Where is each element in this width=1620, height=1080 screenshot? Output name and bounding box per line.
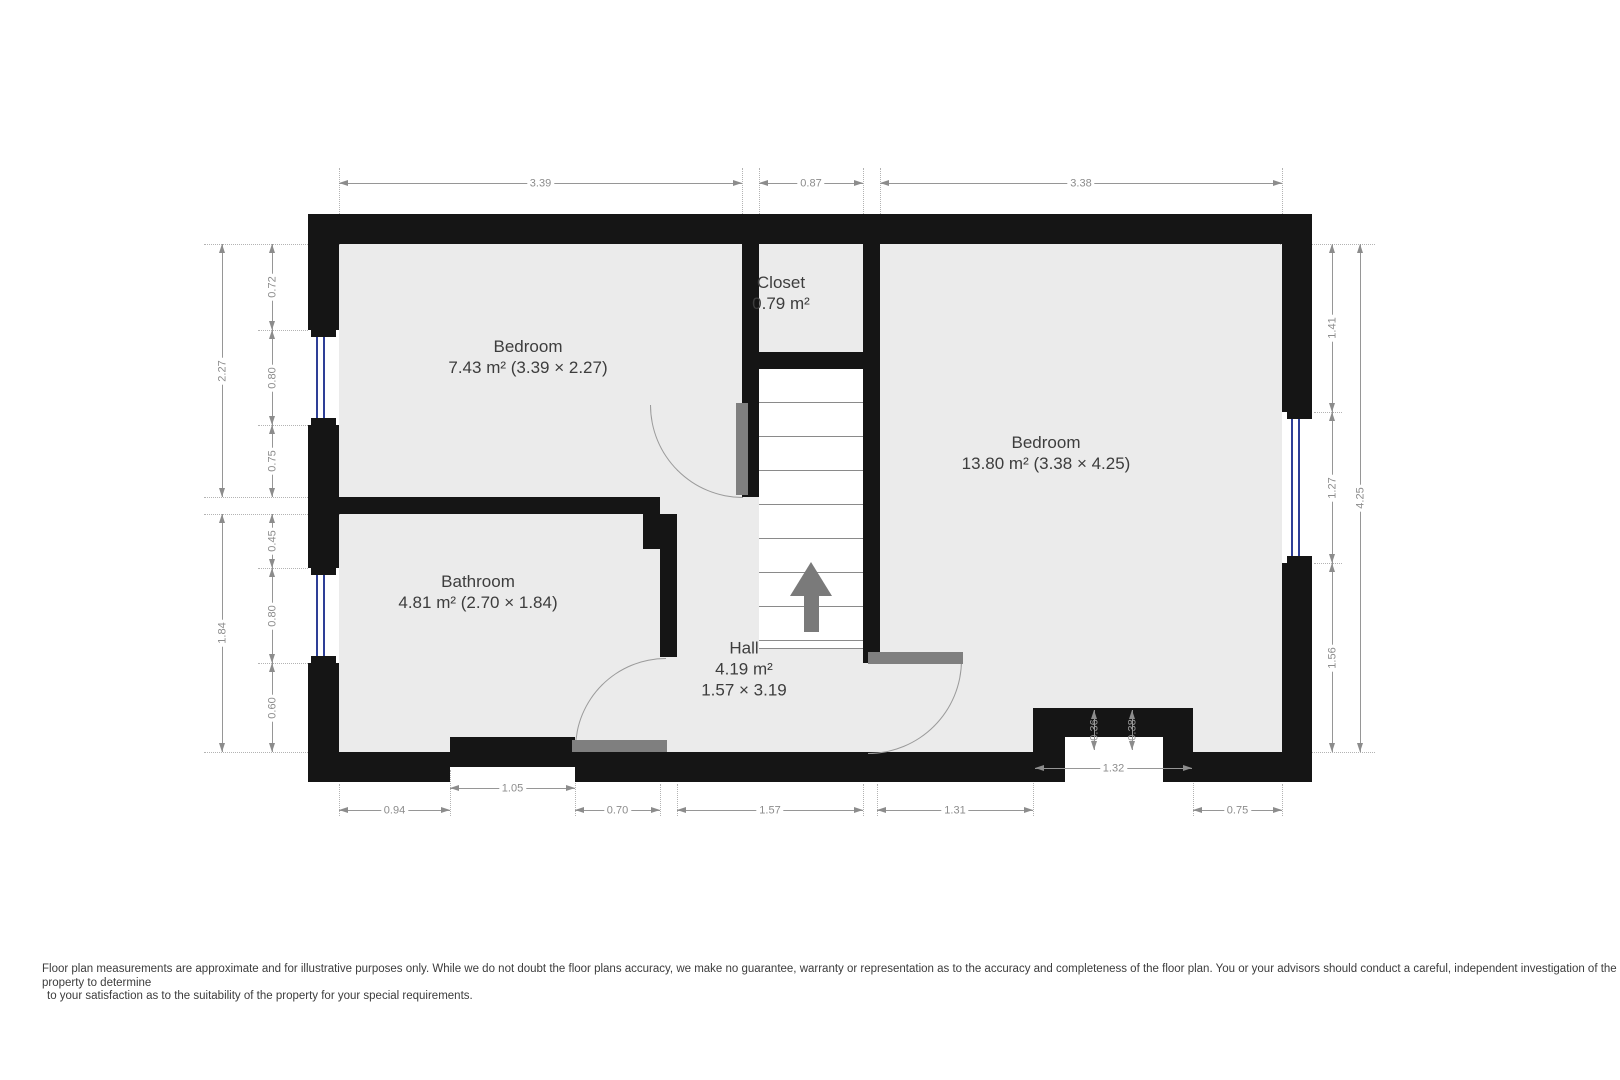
- wall-bottom-bay: [450, 737, 575, 767]
- door-leaf-bathroom: [572, 740, 667, 752]
- window-glass: [1298, 419, 1300, 556]
- extension-line: [450, 770, 451, 816]
- dimension-bottom-3: 1.57: [677, 810, 863, 811]
- stairs-up-arrow-icon: [790, 562, 832, 632]
- dimension-top-3: 3.38: [880, 183, 1282, 184]
- wall-bedroom-bathroom: [339, 497, 660, 514]
- window: [1282, 412, 1312, 563]
- dimension-chimney-depth-1: 0.36: [1094, 710, 1095, 750]
- dimension-value: 0.60: [267, 694, 280, 721]
- dimension-left-inner-3: 0.75: [272, 425, 273, 497]
- dimension-chimney-width: 1.32: [1035, 768, 1192, 769]
- dimension-left-inner-1: 0.72: [272, 244, 273, 330]
- window-frame: [311, 568, 336, 575]
- room-label-bedroom-left: Bedroom 7.43 m² (3.39 × 2.27): [448, 336, 607, 378]
- extension-line: [258, 425, 310, 426]
- window-glass: [323, 337, 325, 418]
- dimension-left-inner-6: 0.60: [272, 663, 273, 752]
- room-label-bedroom-right: Bedroom 13.80 m² (3.38 × 4.25): [962, 432, 1131, 474]
- extension-line: [1282, 784, 1283, 816]
- dimension-value: 1.57: [756, 805, 783, 818]
- room-label-closet: Closet 0.79 m²: [752, 272, 810, 314]
- dimension-value: 0.36: [1089, 716, 1102, 743]
- dimension-value: 0.94: [381, 805, 408, 818]
- room-label-hall: Hall 4.19 m² 1.57 × 3.19: [701, 638, 787, 701]
- room-area: 4.81 m² (2.70 × 1.84): [398, 592, 557, 613]
- window-frame: [311, 330, 336, 337]
- dimension-value: 3.39: [527, 178, 554, 191]
- extension-line: [258, 663, 310, 664]
- wall-bottom: [308, 752, 450, 782]
- window-frame: [311, 656, 336, 663]
- dimension-value: 1.56: [1327, 644, 1340, 671]
- dimension-value: 1.84: [217, 619, 230, 646]
- dimension-value: 2.27: [217, 357, 230, 384]
- wall-top: [308, 214, 1312, 244]
- dimension-value: 1.32: [1100, 763, 1127, 776]
- floor-plan: Bedroom 7.43 m² (3.39 × 2.27) Closet 0.7…: [0, 0, 1620, 1080]
- window-glass: [1291, 419, 1293, 556]
- dimension-value: 3.38: [1067, 178, 1094, 191]
- room-name: Hall: [701, 638, 787, 659]
- dimension-bottom-5: 0.75: [1193, 810, 1282, 811]
- dimension-value: 0.45: [267, 527, 280, 554]
- extension-line: [660, 784, 661, 816]
- dimension-right-inner-1: 1.41: [1332, 244, 1333, 412]
- room-dims: 1.57 × 3.19: [701, 680, 787, 701]
- dimension-value: 0.75: [267, 447, 280, 474]
- disclaimer-text: Floor plan measurements are approximate …: [42, 963, 1617, 1004]
- window-frame: [1287, 556, 1312, 563]
- window-frame: [1287, 412, 1312, 419]
- dimension-bottom-2: 0.70: [575, 810, 660, 811]
- room-name: Closet: [752, 272, 810, 293]
- dimension-value: 1.41: [1327, 314, 1340, 341]
- extension-line: [1314, 563, 1342, 564]
- dimension-bottom-4: 1.31: [877, 810, 1033, 811]
- arrow-stem: [804, 596, 819, 632]
- wall-closet-bottom: [742, 352, 880, 369]
- room-area: 7.43 m² (3.39 × 2.27): [448, 357, 607, 378]
- dimension-chimney-depth-2: 0.38: [1132, 710, 1133, 750]
- extension-line: [759, 168, 760, 216]
- wall-bathroom-hall: [660, 514, 677, 657]
- dimension-value: 0.80: [267, 602, 280, 629]
- window-glass: [323, 575, 325, 656]
- extension-line: [742, 168, 743, 216]
- dimension-top-2: 0.87: [759, 183, 863, 184]
- dimension-value: 1.27: [1327, 474, 1340, 501]
- dimension-left-inner-4: 0.45: [272, 514, 273, 568]
- dimension-value: 1.31: [941, 805, 968, 818]
- window-glass: [316, 575, 318, 656]
- window-frame: [311, 418, 336, 425]
- wall-bottom: [575, 752, 1312, 782]
- extension-line: [339, 168, 340, 216]
- dimension-left-inner-5: 0.80: [272, 568, 273, 663]
- window-glass: [316, 337, 318, 418]
- dimension-value: 1.05: [499, 783, 526, 796]
- dimension-right-outer: 4.25: [1360, 244, 1361, 752]
- disclaimer-line-2: property to determine: [42, 977, 1617, 991]
- extension-line: [880, 168, 881, 216]
- dimension-top-1: 3.39: [339, 183, 742, 184]
- extension-line: [863, 168, 864, 216]
- dimension-value: 0.70: [604, 805, 631, 818]
- wall-bathroom-stub: [643, 514, 660, 549]
- dimension-value: 0.87: [797, 178, 824, 191]
- disclaimer-line-3: to your satisfaction as to the suitabili…: [42, 990, 1617, 1004]
- room-area: 13.80 m² (3.38 × 4.25): [962, 453, 1131, 474]
- disclaimer-line-1: Floor plan measurements are approximate …: [42, 963, 1617, 977]
- door-leaf-bedroom-left: [736, 403, 748, 495]
- dimension-bottom-notch: 1.05: [450, 788, 575, 789]
- wall-stairwell-right: [863, 244, 880, 663]
- wall-left: [308, 214, 339, 782]
- extension-line: [258, 568, 310, 569]
- extension-line: [1314, 412, 1342, 413]
- dimension-left-inner-2: 0.80: [272, 330, 273, 425]
- extension-line: [258, 330, 310, 331]
- dimension-right-inner-3: 1.56: [1332, 563, 1333, 752]
- dimension-value: 4.25: [1355, 484, 1368, 511]
- dimension-bottom-1: 0.94: [339, 810, 450, 811]
- arrow-head: [790, 562, 832, 596]
- dimension-value: 0.75: [1224, 805, 1251, 818]
- dimension-value: 0.80: [267, 364, 280, 391]
- door-leaf-bedroom-right: [868, 652, 963, 664]
- room-name: Bedroom: [448, 336, 607, 357]
- dimension-left-outer-1: 2.27: [222, 244, 223, 497]
- room-area: 0.79 m²: [752, 293, 810, 314]
- chimney-notch: [1065, 737, 1163, 783]
- dimension-value: 0.38: [1127, 716, 1140, 743]
- room-area: 4.19 m²: [701, 659, 787, 680]
- extension-line: [863, 784, 864, 816]
- room-name: Bathroom: [398, 571, 557, 592]
- dimension-left-outer-2: 1.84: [222, 514, 223, 752]
- dimension-value: 0.72: [267, 273, 280, 300]
- extension-line: [1282, 168, 1283, 216]
- room-label-bathroom: Bathroom 4.81 m² (2.70 × 1.84): [398, 571, 557, 613]
- dimension-right-inner-2: 1.27: [1332, 412, 1333, 563]
- room-name: Bedroom: [962, 432, 1131, 453]
